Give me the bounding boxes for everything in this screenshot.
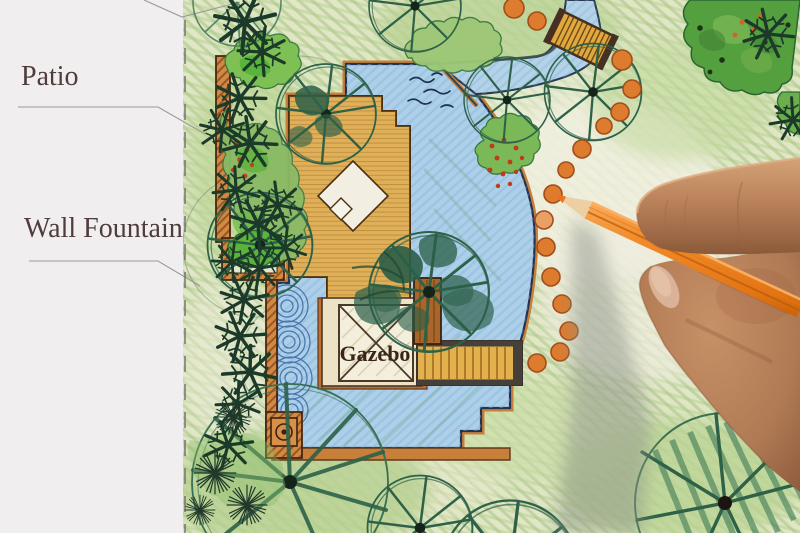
svg-text:Wall Fountain: Wall Fountain <box>24 213 183 244</box>
svg-text:Patio: Patio <box>21 61 79 92</box>
